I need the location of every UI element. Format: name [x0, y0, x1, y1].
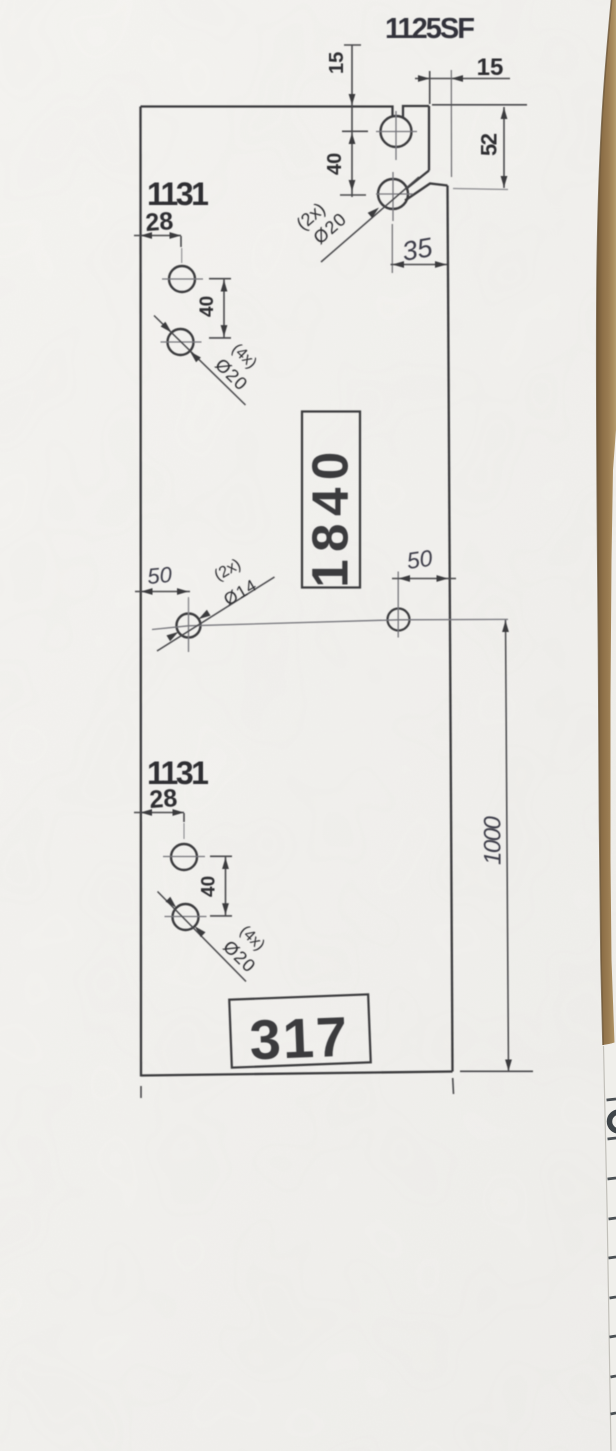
- svg-text:50: 50: [405, 545, 434, 574]
- svg-text:40: 40: [199, 876, 220, 897]
- svg-text:317: 317: [248, 1005, 350, 1072]
- svg-text:1125SF: 1125SF: [385, 13, 474, 45]
- svg-text:1000: 1000: [480, 815, 507, 865]
- svg-text:1131: 1131: [147, 176, 208, 212]
- svg-text:52: 52: [477, 133, 502, 156]
- svg-text:1840: 1840: [302, 444, 359, 587]
- svg-text:40: 40: [324, 153, 346, 175]
- svg-text:35: 35: [400, 232, 436, 267]
- svg-text:40: 40: [197, 296, 218, 317]
- svg-text:15: 15: [326, 52, 348, 74]
- svg-text:15: 15: [477, 54, 504, 81]
- svg-text:50: 50: [146, 562, 173, 589]
